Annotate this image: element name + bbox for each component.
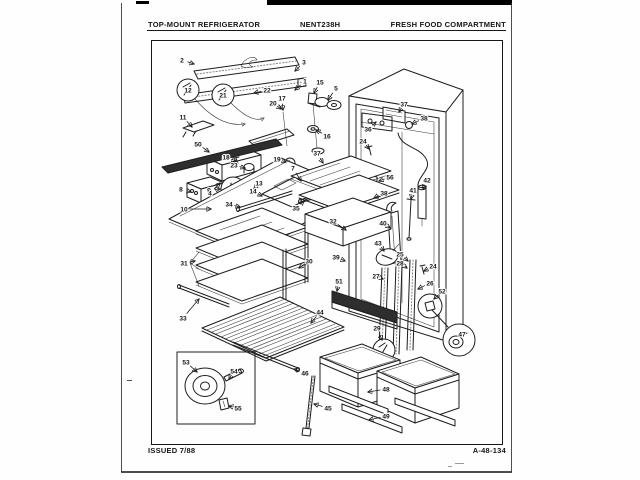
callout-number-31: 31: [180, 260, 188, 267]
footer-drawing-number: A-48-134: [473, 446, 506, 455]
callout-number-29: 29: [373, 325, 381, 332]
callout-leader-5: [328, 93, 333, 100]
callout-number-7: 7: [291, 165, 295, 172]
callout-leader-45: [314, 404, 322, 406]
callout-number-40: 40: [379, 220, 387, 227]
callout-number-18: 18: [222, 154, 230, 161]
callout-number-17: 17: [278, 95, 286, 102]
callout-number-37: 37: [313, 150, 321, 157]
callout-number-24: 24: [359, 138, 367, 145]
callout-number-10: 10: [180, 206, 188, 213]
callout-leader-50: [203, 148, 209, 152]
callout-leader-55: [229, 406, 232, 407]
callout-number-28: 28: [396, 260, 404, 267]
callout-number-4: 4: [208, 190, 212, 197]
callout-number-36: 36: [364, 126, 372, 133]
callout-number-41: 41: [409, 187, 417, 194]
callout-leader-2: [188, 62, 194, 64]
callout-leader-17: [282, 104, 283, 110]
callout-number-35: 35: [292, 205, 300, 212]
callout-number-37: 37: [400, 101, 408, 108]
footer-issue-date: ISSUED 7/88: [148, 446, 195, 455]
callout-number-49: 49: [382, 413, 390, 420]
callout-number-16: 16: [323, 133, 331, 140]
callout-number-13: 13: [255, 180, 263, 187]
callout-number-44: 44: [316, 309, 324, 316]
callout-number-24: 24: [429, 263, 437, 270]
callout-number-12: 12: [184, 87, 192, 94]
callout-leader-31: [190, 261, 195, 262]
callout-leader-39: [341, 259, 345, 261]
callout-number-43: 43: [374, 240, 382, 247]
callout-number-2: 2: [180, 57, 184, 64]
scanned-parts-manual-page: TOP-MOUNT REFRIGERATOR NENT238H FRESH FO…: [0, 0, 640, 480]
callout-number-56: 56: [386, 174, 394, 181]
callout-number-8: 8: [179, 186, 183, 193]
callout-number-55: 55: [234, 405, 242, 412]
callout-leader-51: [337, 287, 338, 291]
callout-number-20: 20: [269, 100, 277, 107]
callout-leader-20: [278, 107, 281, 109]
callout-number-54: 54: [230, 368, 238, 375]
callout-number-27: 27: [372, 273, 380, 280]
callout-number-33: 33: [179, 315, 187, 322]
callout-number-47: 47: [458, 331, 466, 338]
callout-number-51: 51: [335, 278, 343, 285]
callout-number-42: 42: [423, 177, 431, 184]
callout-number-21: 21: [219, 92, 227, 99]
callout-leader-33: [187, 299, 199, 313]
callout-number-22: 22: [263, 87, 271, 94]
callout-number-19: 19: [273, 156, 281, 163]
callout-number-15: 15: [316, 79, 324, 86]
callout-number-5: 5: [334, 85, 338, 92]
callout-number-50: 50: [194, 141, 202, 148]
callout-number-46: 46: [301, 370, 309, 377]
callout-number-1: 1: [303, 78, 307, 85]
callout-leader-30: [299, 264, 304, 268]
callout-number-30: 30: [305, 258, 313, 265]
callout-leader-3: [295, 66, 300, 71]
exploded-parts-diagram: 2311551221221720111636373824503718192375…: [0, 0, 640, 480]
callout-number-45: 45: [324, 405, 332, 412]
callout-number-26: 26: [426, 280, 434, 287]
callout-number-52: 52: [438, 288, 446, 295]
callout-number-38: 38: [380, 190, 388, 197]
callout-leader-37: [320, 158, 323, 163]
callout-number-14: 14: [249, 188, 257, 195]
callout-number-11: 11: [180, 114, 187, 121]
callout-number-38: 38: [420, 115, 428, 122]
callout-number-3: 3: [302, 59, 306, 66]
callout-number-23: 23: [230, 162, 238, 169]
callout-number-32: 32: [329, 218, 337, 225]
callout-number-53: 53: [182, 359, 190, 366]
callout-number-34: 34: [225, 201, 233, 208]
callout-number-48: 48: [382, 386, 390, 393]
callout-number-39: 39: [332, 254, 340, 261]
crisper-drawers: [302, 344, 459, 436]
callout-leader-15: [314, 87, 317, 93]
callout-number-25: 25: [396, 251, 404, 258]
